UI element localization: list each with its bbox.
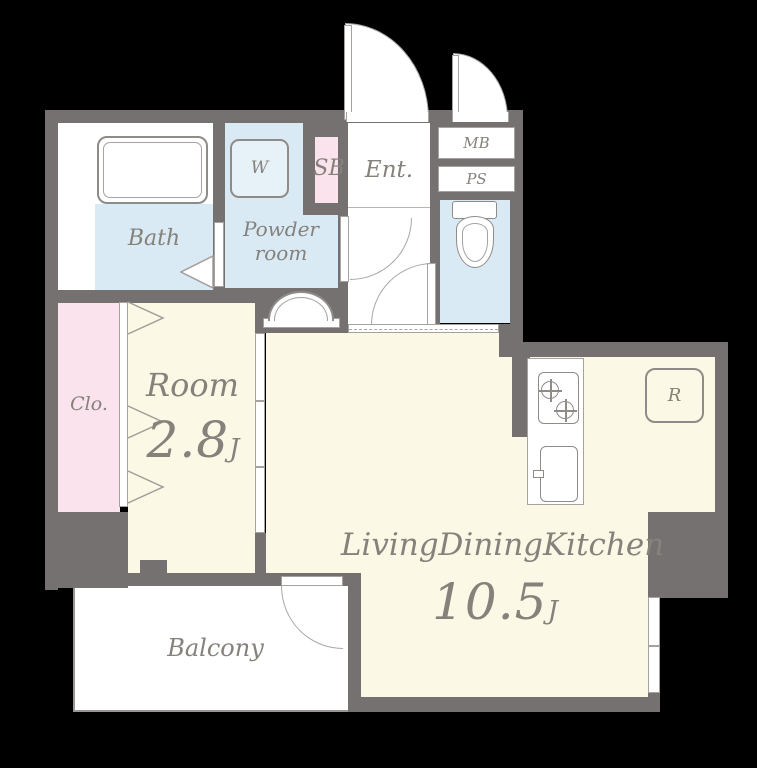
washer-box: W: [230, 139, 289, 198]
bathtub-icon: [97, 136, 208, 204]
bath-powder-door: [214, 222, 224, 287]
pipe-space-label: PS: [466, 170, 486, 188]
entrance-door-swing-icon: [345, 23, 429, 119]
folding-door-icon: [127, 470, 165, 504]
meter-box-label: MB: [463, 134, 489, 152]
refrigerator-box: R: [645, 368, 704, 423]
meter-box-door-swing-icon: [453, 53, 508, 119]
entrance-door-leaf: [344, 25, 352, 120]
wall-threshold-patch: [499, 324, 515, 357]
sink-icon: [540, 446, 578, 502]
powder-hall-door-leaf: [340, 216, 349, 282]
washer-label: W: [251, 158, 268, 178]
refrigerator-label: R: [668, 385, 682, 407]
wall-shoebox-bottom: [303, 203, 348, 215]
faucet-icon: [533, 470, 544, 478]
burner-icon: [556, 401, 574, 419]
folding-door-icon: [127, 301, 165, 335]
burner-icon: [541, 381, 559, 399]
room-label: Room: [125, 366, 260, 404]
room-size-unit: J: [229, 434, 239, 464]
threshold-dashes: [349, 329, 498, 330]
meter-box-door-sill: [452, 112, 509, 122]
entrance-label: Ent.: [348, 157, 430, 185]
meter-box: MB: [438, 127, 515, 159]
closet-label: Clo.: [58, 393, 120, 416]
bath-door-icon: [180, 255, 214, 289]
floor-plan: W MB PS R Bath SB Ent. Powder room Clo. …: [0, 0, 757, 768]
ldk-size: 10.5: [432, 573, 547, 631]
powder-room-label: Powder room: [224, 217, 338, 265]
wall-ldk-top-right: [512, 342, 728, 357]
ldk-label: LivingDiningKitchen: [295, 527, 710, 564]
shoe-box-label: SB: [309, 156, 349, 182]
wall-divider-bottom: [255, 533, 266, 578]
window-tick: [649, 645, 659, 647]
sliding-door-threshold: [348, 324, 499, 333]
wall-room-bottom-block: [140, 560, 167, 573]
entrance-door-sill: [346, 112, 429, 122]
bathtub-inner: [103, 142, 202, 198]
pipe-space-box: PS: [438, 166, 515, 192]
burner-cross: [554, 410, 577, 412]
meter-box-door-leaf: [452, 55, 459, 119]
wall-block-bottom-left: [45, 512, 128, 588]
room-size: 2.8: [147, 411, 230, 469]
washbasin-inner: [274, 297, 328, 321]
powder-room-line1: Powder: [224, 217, 338, 241]
balcony-label: Balcony: [73, 634, 358, 663]
entrance-step-line: [348, 207, 430, 208]
powder-room-line2: room: [224, 241, 338, 265]
room-size-label: 2.8J: [118, 410, 268, 470]
toilet-bowl-inner: [462, 223, 488, 262]
ldk-size-unit: J: [547, 596, 557, 626]
ldk-size-label: 10.5J: [295, 572, 695, 632]
wall-ldk-bottom: [348, 697, 660, 712]
burner-cross: [539, 390, 562, 392]
wall-shoebox-top: [303, 123, 348, 137]
bath-label: Bath: [95, 226, 213, 252]
